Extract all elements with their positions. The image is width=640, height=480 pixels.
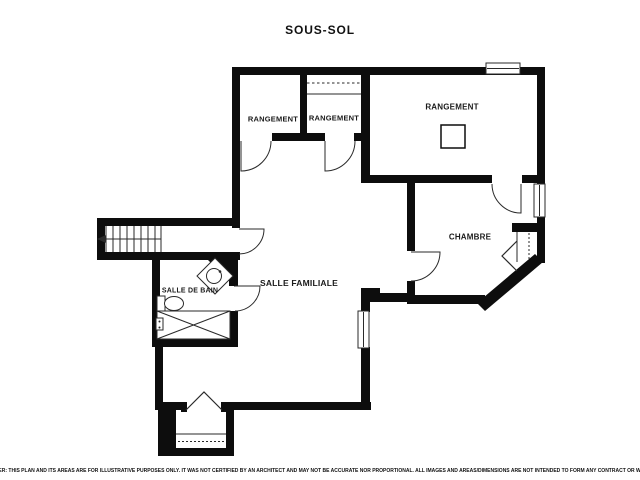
room-label-salle-familiale: SALLE FAMILIALE (260, 278, 338, 288)
bathtub-icon (156, 311, 230, 339)
disclaimer-text: DISCLAIMER: THIS PLAN AND ITS AREAS ARE … (0, 468, 640, 474)
toilet-icon (157, 296, 184, 311)
column-icon (441, 125, 465, 148)
room-label-rangement-large: RANGEMENT (425, 103, 478, 112)
room-label-rangement-middle: RANGEMENT (309, 114, 359, 123)
entry-step-lines (176, 434, 226, 442)
low-headroom-lines (307, 83, 361, 94)
floor-plan-page: SOUS-SOL RANGEMENT RANGEMENT RANGEMENT C… (0, 0, 640, 480)
room-label-rangement-left: RANGEMENT (248, 115, 298, 124)
room-label-chambre: CHAMBRE (449, 233, 491, 242)
floor-plan-drawing (0, 0, 640, 480)
room-label-salle-de-bain: SALLE DE BAIN (162, 288, 218, 295)
staircase-icon (97, 226, 161, 252)
walls (97, 67, 545, 456)
page-title: SOUS-SOL (285, 23, 355, 37)
entry-door-icon (186, 392, 222, 410)
